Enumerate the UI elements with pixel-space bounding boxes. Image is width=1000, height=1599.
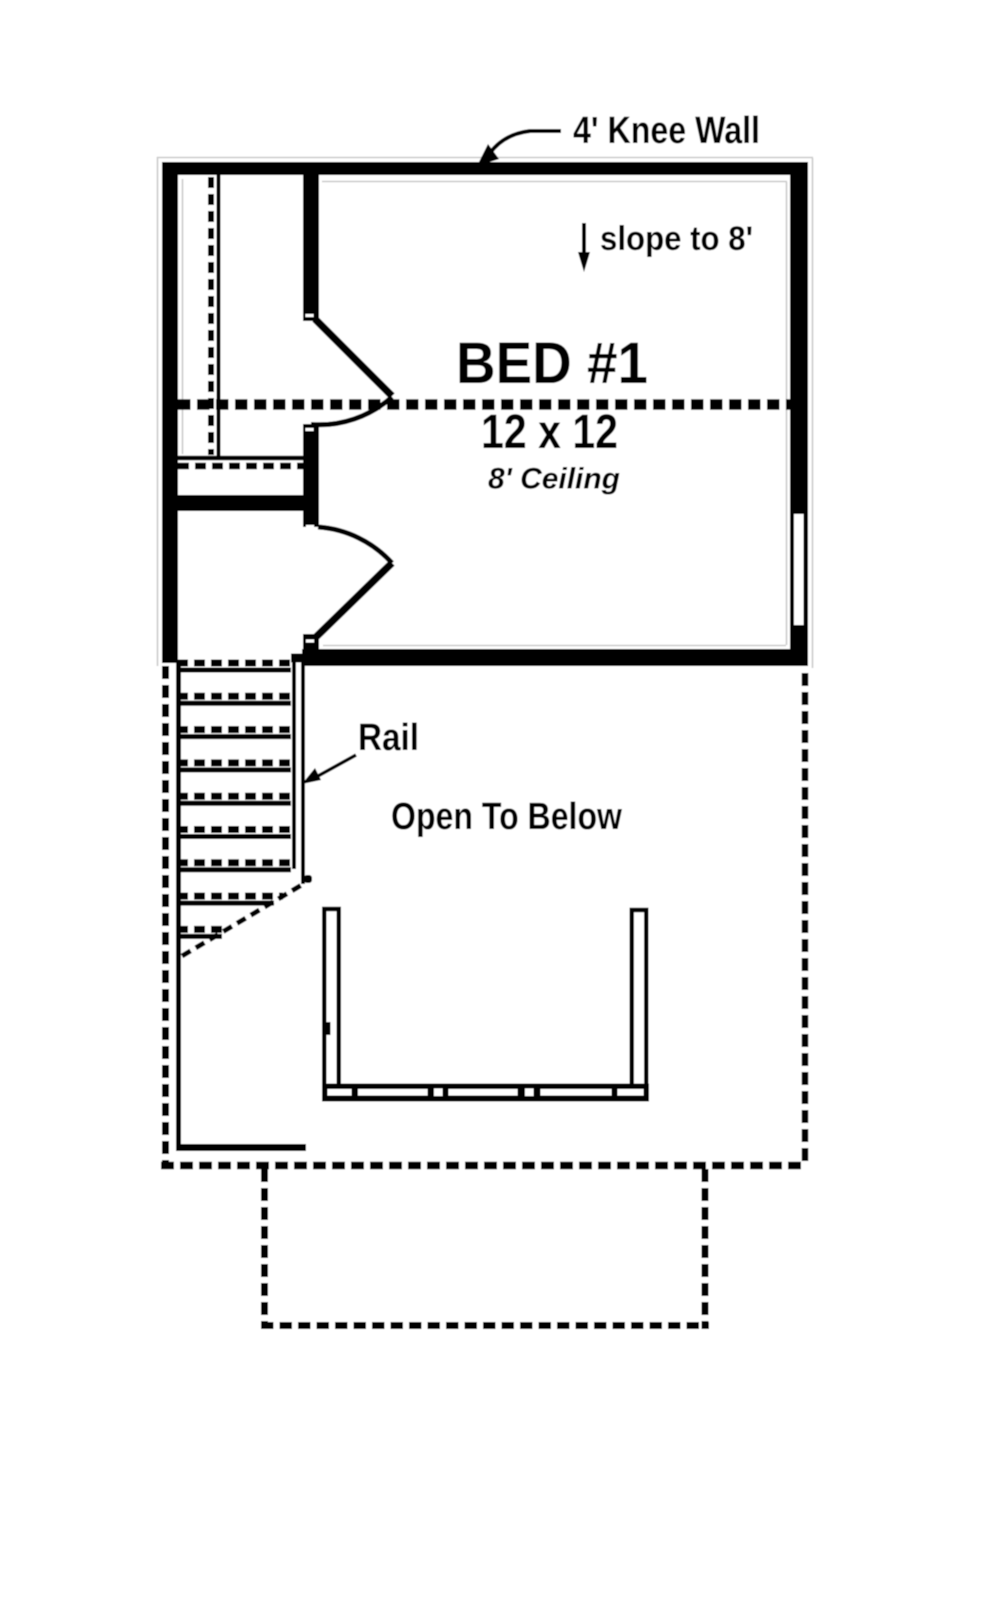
svg-text:Rail: Rail [358,717,419,759]
svg-text:slope to 8': slope to 8' [600,220,753,258]
svg-text:BED #1: BED #1 [456,331,648,396]
svg-text:4' Knee Wall: 4' Knee Wall [573,110,760,152]
svg-text:8' Ceiling: 8' Ceiling [488,463,620,496]
svg-text:Open To Below: Open To Below [391,796,622,838]
svg-text:12 x 12: 12 x 12 [481,406,618,459]
